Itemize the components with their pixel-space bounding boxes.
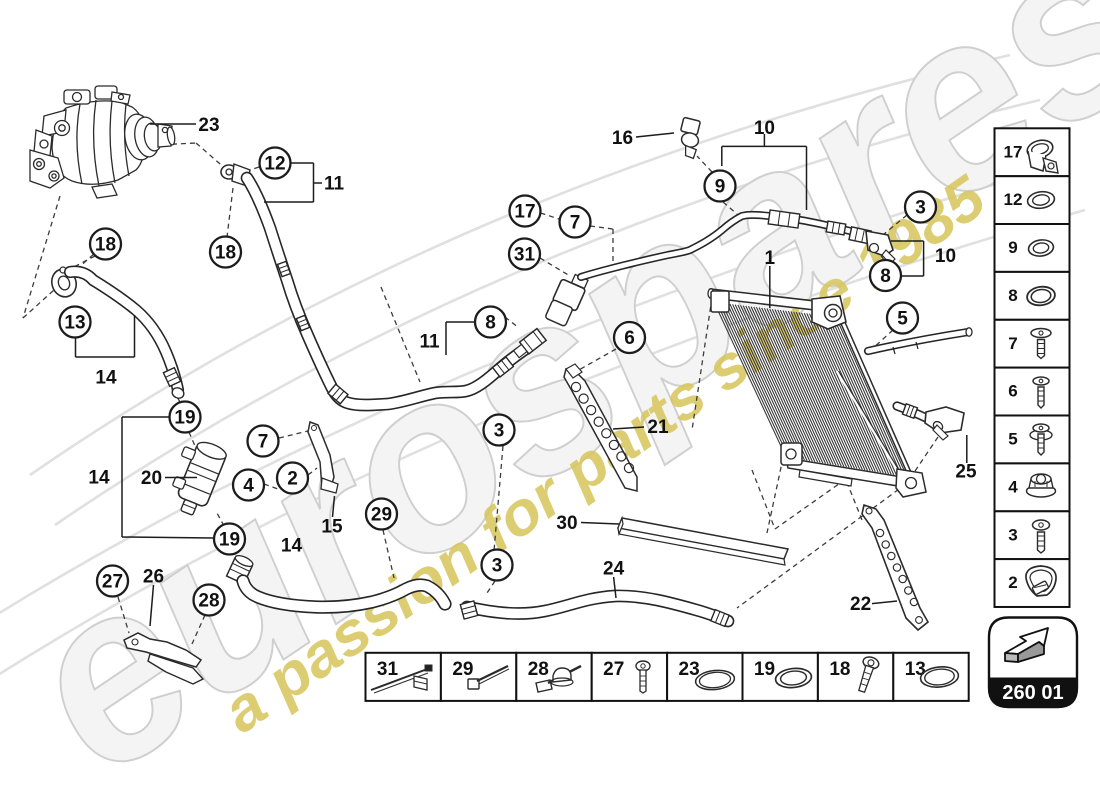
- svg-text:260 01: 260 01: [1002, 682, 1063, 704]
- svg-text:23: 23: [679, 659, 700, 680]
- svg-text:2: 2: [287, 469, 298, 490]
- svg-text:15: 15: [321, 517, 343, 538]
- svg-text:8: 8: [485, 313, 496, 334]
- svg-text:7: 7: [1008, 334, 1017, 353]
- svg-text:9: 9: [1008, 238, 1017, 257]
- svg-text:23: 23: [198, 115, 219, 136]
- svg-text:13: 13: [905, 659, 926, 680]
- svg-text:20: 20: [141, 468, 162, 489]
- svg-text:13: 13: [64, 313, 85, 334]
- svg-text:3: 3: [494, 421, 505, 442]
- svg-text:14: 14: [95, 368, 117, 389]
- svg-text:18: 18: [95, 235, 116, 256]
- svg-text:8: 8: [880, 266, 891, 287]
- svg-text:18: 18: [829, 659, 850, 680]
- svg-text:6: 6: [1008, 382, 1017, 401]
- svg-text:26: 26: [143, 567, 164, 588]
- svg-text:7: 7: [258, 432, 269, 453]
- svg-text:21: 21: [647, 417, 669, 438]
- svg-text:10: 10: [935, 246, 956, 267]
- svg-text:29: 29: [452, 659, 473, 680]
- svg-text:10: 10: [754, 118, 775, 139]
- svg-text:31: 31: [377, 659, 399, 680]
- svg-text:12: 12: [1004, 190, 1023, 209]
- svg-text:9: 9: [715, 177, 726, 198]
- svg-text:19: 19: [754, 659, 775, 680]
- svg-text:25: 25: [955, 462, 977, 483]
- svg-text:30: 30: [556, 513, 577, 534]
- svg-text:1: 1: [765, 248, 776, 269]
- svg-text:4: 4: [1008, 477, 1018, 496]
- svg-text:2: 2: [1008, 573, 1017, 592]
- svg-text:17: 17: [514, 202, 535, 223]
- svg-text:6: 6: [624, 328, 635, 349]
- svg-text:16: 16: [612, 128, 633, 149]
- svg-text:24: 24: [603, 559, 625, 580]
- svg-text:11: 11: [419, 332, 440, 353]
- svg-text:27: 27: [603, 659, 624, 680]
- svg-text:4: 4: [243, 476, 254, 497]
- svg-text:28: 28: [198, 591, 219, 612]
- svg-text:14: 14: [281, 536, 303, 557]
- svg-text:31: 31: [514, 245, 536, 266]
- svg-text:3: 3: [1008, 525, 1017, 544]
- svg-text:3: 3: [915, 198, 926, 219]
- svg-text:14: 14: [88, 468, 110, 489]
- svg-text:12: 12: [264, 154, 285, 175]
- svg-text:29: 29: [371, 505, 392, 526]
- svg-text:3: 3: [492, 556, 503, 577]
- svg-text:28: 28: [528, 659, 549, 680]
- svg-text:18: 18: [215, 243, 236, 264]
- svg-text:19: 19: [219, 530, 240, 551]
- svg-text:17: 17: [1004, 142, 1023, 161]
- svg-text:11: 11: [324, 174, 345, 195]
- svg-text:22: 22: [850, 594, 871, 615]
- svg-text:5: 5: [897, 309, 908, 330]
- svg-text:27: 27: [102, 572, 123, 593]
- svg-text:7: 7: [570, 213, 581, 234]
- svg-text:8: 8: [1008, 286, 1017, 305]
- svg-text:5: 5: [1008, 430, 1017, 449]
- svg-text:19: 19: [174, 408, 195, 429]
